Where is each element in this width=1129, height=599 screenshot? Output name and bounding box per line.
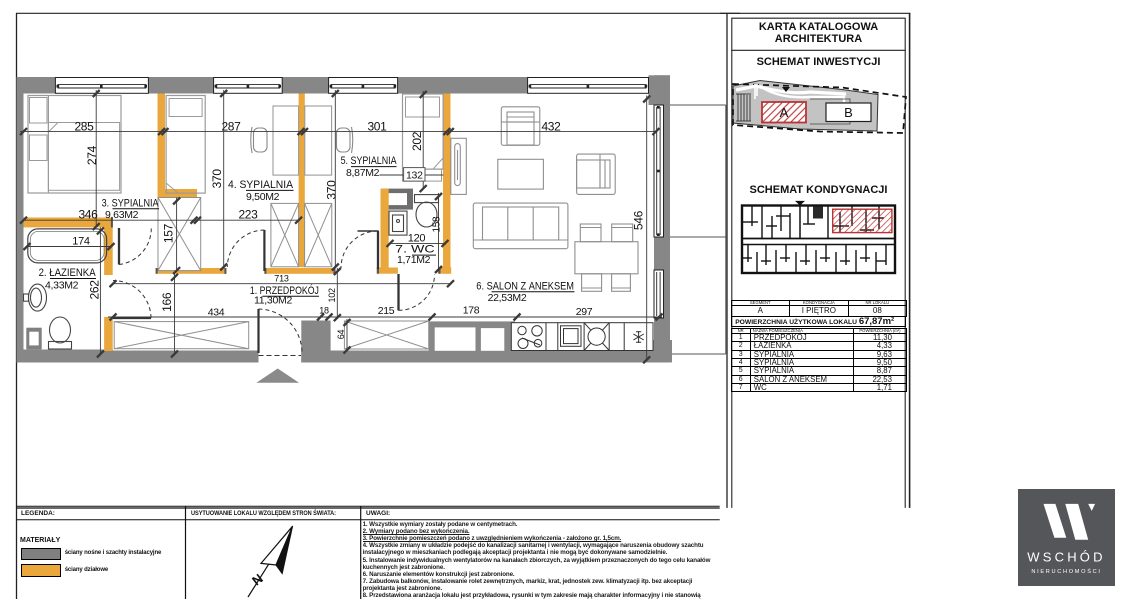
svg-text:132: 132 <box>406 169 423 181</box>
svg-text:4. SYPIALNIA: 4. SYPIALNIA <box>228 179 294 191</box>
svg-text:5. SYPIALNIA: 5. SYPIALNIA <box>341 155 398 167</box>
svg-text:2. ŁAZIENKA: 2. ŁAZIENKA <box>39 267 97 279</box>
svg-text:434: 434 <box>208 307 225 319</box>
svg-text:B: B <box>844 105 853 120</box>
svg-text:157: 157 <box>161 223 175 243</box>
svg-text:158: 158 <box>431 216 442 233</box>
svg-text:297: 297 <box>576 306 593 318</box>
svg-text:370: 370 <box>210 169 224 189</box>
svg-text:120: 120 <box>408 233 426 245</box>
svg-text:287: 287 <box>221 120 241 134</box>
svg-text:9,50M2: 9,50M2 <box>246 191 280 203</box>
svg-text:223: 223 <box>238 208 258 222</box>
svg-text:166: 166 <box>160 292 174 312</box>
svg-text:301: 301 <box>367 120 387 134</box>
svg-text:202: 202 <box>410 131 424 151</box>
svg-text:22,53M2: 22,53M2 <box>488 292 527 304</box>
svg-text:262: 262 <box>87 280 101 300</box>
svg-text:6. SALON Z ANEKSEM: 6. SALON Z ANEKSEM <box>476 280 574 292</box>
svg-text:8,87M2: 8,87M2 <box>346 167 380 179</box>
svg-text:285: 285 <box>74 120 94 134</box>
svg-text:178: 178 <box>463 305 480 317</box>
svg-text:370: 370 <box>325 180 339 200</box>
svg-text:274: 274 <box>85 145 99 165</box>
svg-text:102: 102 <box>327 288 337 302</box>
svg-text:18: 18 <box>319 306 329 316</box>
svg-text:713: 713 <box>274 274 289 284</box>
svg-text:9,63M2: 9,63M2 <box>105 209 139 221</box>
svg-text:NIERUCHOMOŚCI: NIERUCHOMOŚCI <box>1032 567 1102 575</box>
svg-text:215: 215 <box>378 305 395 317</box>
svg-text:WSCHÓD: WSCHÓD <box>1028 549 1106 564</box>
svg-text:1,71M2: 1,71M2 <box>397 254 431 266</box>
svg-text:11,30M2: 11,30M2 <box>254 295 292 307</box>
svg-text:174: 174 <box>72 235 90 247</box>
svg-text:432: 432 <box>541 120 561 134</box>
svg-text:64: 64 <box>336 330 346 340</box>
svg-text:546: 546 <box>632 210 646 230</box>
svg-text:3. SYPIALNIA: 3. SYPIALNIA <box>102 197 160 209</box>
svg-text:4,33M2: 4,33M2 <box>45 280 79 292</box>
svg-text:346: 346 <box>78 208 98 222</box>
svg-text:A: A <box>780 105 789 120</box>
